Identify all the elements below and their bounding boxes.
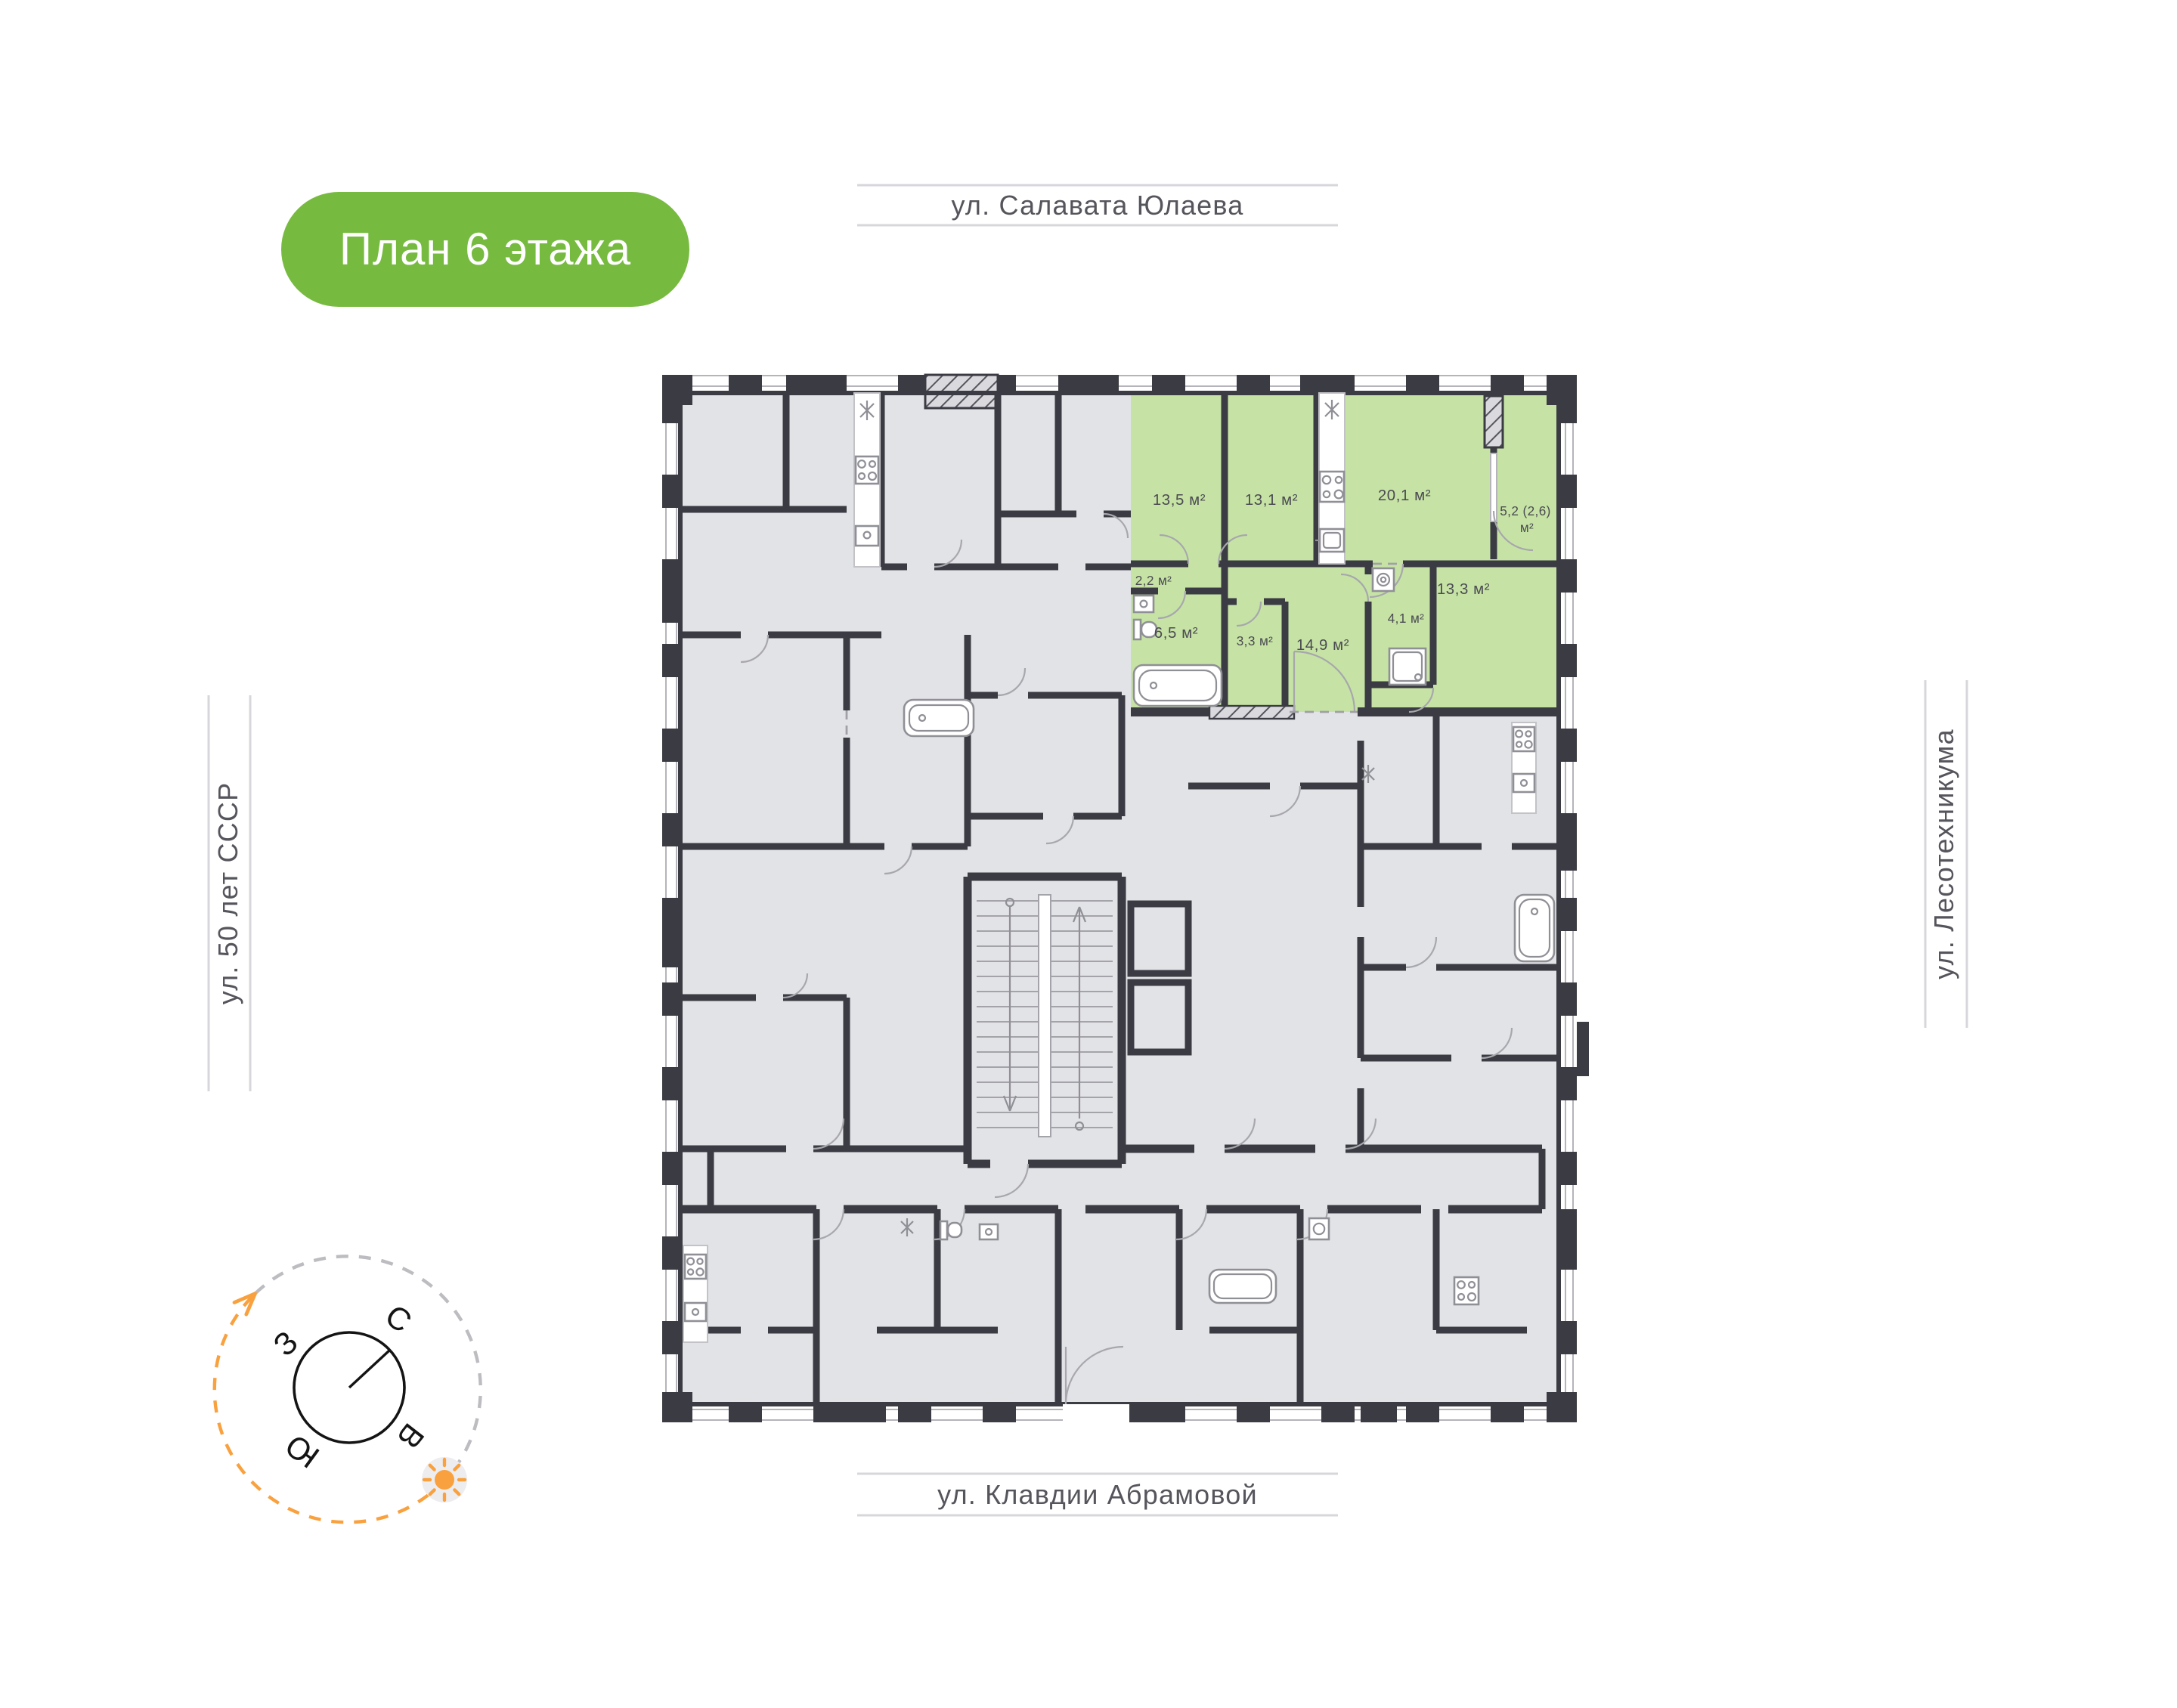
bathtub-icon <box>904 700 974 736</box>
building-plan: 13,5 м² 13,1 м² 20,1 м² 5,2 (2,6) м² 2,2… <box>662 375 1589 1422</box>
sink-icon <box>1513 774 1534 792</box>
compass: С З Ю В <box>215 1256 481 1522</box>
room-area-label-5-2: 5,2 (2,6) <box>1500 503 1551 518</box>
street-name-top: ул. Салавата Юлаева <box>951 190 1243 221</box>
bathtub-icon <box>1209 1270 1276 1303</box>
shower-tray-icon <box>1389 648 1426 685</box>
stove-icon <box>856 456 878 484</box>
sink-icon <box>980 1224 998 1239</box>
entrance-opening <box>1063 1404 1129 1422</box>
hatched-pier <box>1485 396 1503 447</box>
room-area-label-13-3: 13,3 м² <box>1437 581 1490 598</box>
room-area-label-13-5: 13,5 м² <box>1153 492 1206 509</box>
floor-badge: План 6 этажа <box>281 192 689 307</box>
toilet-icon <box>1134 620 1157 639</box>
room-area-label-20-1: 20,1 м² <box>1378 487 1431 504</box>
street-label-bottom: ул. Клавдии Абрамовой <box>857 1474 1338 1515</box>
street-name-left: ул. 50 лет СССР <box>212 782 243 1005</box>
street-label-right: ул. Лесотехникума <box>1925 680 1967 1028</box>
washing-machine-icon <box>1309 1218 1329 1239</box>
room-area-label-6-5: 6,5 м² <box>1154 625 1198 642</box>
room-area-label-14-9: 14,9 м² <box>1296 637 1349 654</box>
sink-icon <box>1315 529 1344 552</box>
stove-icon <box>1320 472 1344 502</box>
sink-icon <box>856 526 878 546</box>
compass-letter-north: С <box>379 1298 418 1340</box>
compass-letter-west: З <box>266 1324 304 1363</box>
stove-icon <box>1454 1277 1479 1304</box>
toilet-icon <box>940 1221 962 1239</box>
street-label-left: ул. 50 лет СССР <box>209 695 250 1091</box>
badge-label: План 6 этажа <box>339 224 631 274</box>
room-area-label-2-2: 2,2 м² <box>1135 573 1172 588</box>
room-area-label-5-2-unit: м² <box>1520 520 1534 535</box>
washing-machine-icon <box>1373 568 1394 591</box>
sink-icon <box>685 1303 706 1321</box>
bathtub-icon <box>1515 895 1554 961</box>
hatched-wall <box>1209 706 1294 719</box>
street-label-top: ул. Салавата Юлаева <box>857 185 1338 225</box>
bathtub-icon <box>1134 665 1222 706</box>
sun-icon <box>422 1457 467 1502</box>
floor-plan-canvas: ул. Салавата Юлаева ул. Клавдии Абрамово… <box>0 0 2177 1708</box>
street-name-right: ул. Лесотехникума <box>1928 729 1959 979</box>
room-area-label-13-1: 13,1 м² <box>1245 492 1298 509</box>
street-name-bottom: ул. Клавдии Абрамовой <box>937 1479 1258 1510</box>
stove-icon <box>685 1255 706 1279</box>
compass-letter-east: В <box>390 1417 431 1456</box>
room-area-label-3-3: 3,3 м² <box>1237 633 1274 648</box>
stove-icon <box>1513 727 1534 751</box>
sink-icon <box>1134 596 1154 612</box>
room-area-label-4-1: 4,1 м² <box>1388 611 1425 626</box>
